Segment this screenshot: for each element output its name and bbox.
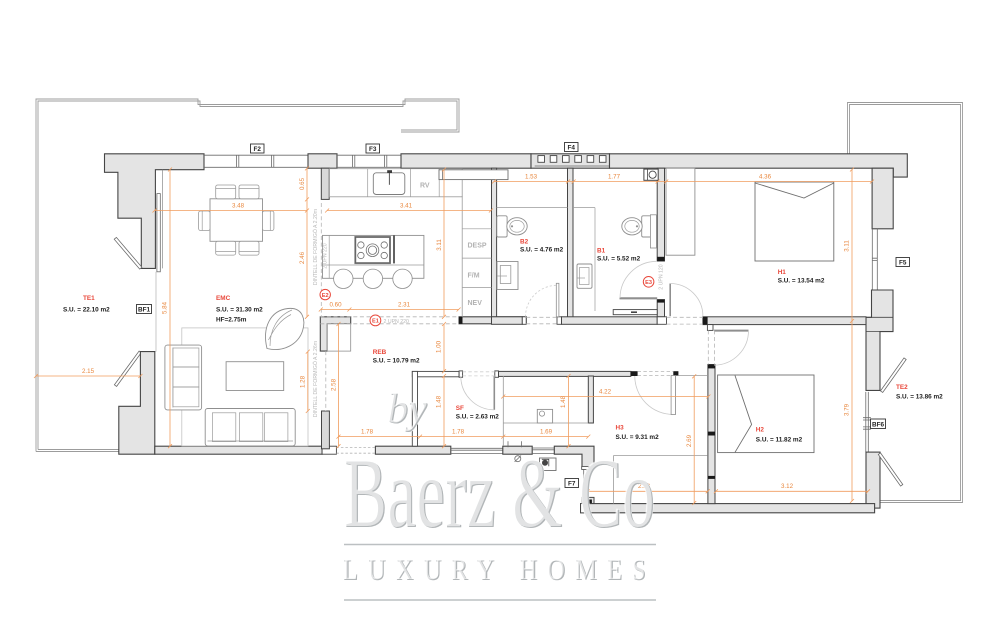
svg-text:3.12: 3.12 bbox=[781, 483, 794, 490]
svg-text:NEV: NEV bbox=[468, 300, 483, 307]
svg-text:S.U. = 13.54 m2: S.U. = 13.54 m2 bbox=[778, 278, 825, 285]
svg-text:1.00: 1.00 bbox=[436, 340, 443, 353]
svg-text:DINTELL DE FORMIGÓ A 2.20m: DINTELL DE FORMIGÓ A 2.20m bbox=[312, 209, 319, 285]
svg-text:2.58: 2.58 bbox=[331, 378, 338, 391]
svg-text:2 UPN 220: 2 UPN 220 bbox=[384, 319, 409, 325]
svg-text:1.77: 1.77 bbox=[608, 173, 621, 180]
svg-text:2.15: 2.15 bbox=[82, 368, 95, 375]
svg-text:1.78: 1.78 bbox=[361, 428, 374, 435]
svg-text:2 UPN 220: 2 UPN 220 bbox=[323, 243, 329, 268]
svg-text:E2: E2 bbox=[322, 293, 329, 299]
svg-text:E1: E1 bbox=[372, 319, 379, 325]
svg-text:B1: B1 bbox=[597, 248, 606, 255]
svg-text:4.22: 4.22 bbox=[599, 388, 612, 395]
svg-text:S.U. = 5.52 m2: S.U. = 5.52 m2 bbox=[597, 256, 641, 263]
svg-text:3.79: 3.79 bbox=[844, 403, 851, 416]
svg-text:S.U. = 2.63 m2: S.U. = 2.63 m2 bbox=[456, 414, 500, 421]
svg-text:2.69: 2.69 bbox=[686, 434, 693, 447]
svg-text:TE2: TE2 bbox=[896, 384, 908, 391]
svg-text:S.U. = 10.79 m2: S.U. = 10.79 m2 bbox=[373, 358, 420, 365]
svg-text:TE1: TE1 bbox=[83, 295, 95, 302]
svg-text:2.46: 2.46 bbox=[299, 251, 306, 264]
svg-text:1.53: 1.53 bbox=[525, 173, 538, 180]
svg-text:3.11: 3.11 bbox=[844, 240, 851, 252]
svg-text:E3: E3 bbox=[645, 280, 652, 286]
svg-text:LUXURY HOMES: LUXURY HOMES bbox=[342, 553, 655, 586]
svg-text:F4: F4 bbox=[567, 145, 575, 152]
svg-text:S.U. = 13.86 m2: S.U. = 13.86 m2 bbox=[896, 394, 943, 401]
svg-text:B2: B2 bbox=[520, 239, 529, 246]
svg-text:BF6: BF6 bbox=[872, 421, 885, 428]
svg-text:2.31: 2.31 bbox=[398, 301, 411, 308]
svg-text:S.U. = 31.30 m2: S.U. = 31.30 m2 bbox=[216, 307, 263, 314]
svg-text:BF1: BF1 bbox=[138, 307, 151, 314]
svg-text:5.84: 5.84 bbox=[162, 301, 169, 314]
svg-text:0.65: 0.65 bbox=[299, 177, 306, 190]
svg-text:Baerz & Co: Baerz & Co bbox=[343, 437, 654, 548]
svg-text:RV: RV bbox=[420, 183, 430, 190]
svg-text:1.69: 1.69 bbox=[540, 428, 553, 435]
svg-text:HF=2.75m: HF=2.75m bbox=[216, 317, 247, 324]
svg-text:S.U. = 11.82 m2: S.U. = 11.82 m2 bbox=[756, 437, 803, 444]
svg-text:3.48: 3.48 bbox=[232, 203, 245, 210]
svg-text:3.41: 3.41 bbox=[400, 203, 413, 210]
svg-text:REB: REB bbox=[373, 349, 387, 356]
svg-text:0.60: 0.60 bbox=[329, 301, 342, 308]
svg-text:DESP: DESP bbox=[468, 243, 487, 250]
svg-text:DINTELL DE FORMIGÓ A 2.26m: DINTELL DE FORMIGÓ A 2.26m bbox=[312, 341, 319, 417]
svg-text:F3: F3 bbox=[369, 146, 377, 153]
svg-text:F5: F5 bbox=[899, 260, 907, 267]
svg-text:1.48: 1.48 bbox=[560, 395, 567, 408]
svg-text:H1: H1 bbox=[778, 269, 787, 276]
svg-text:F2: F2 bbox=[253, 146, 261, 153]
svg-text:S.U. = 4.76 m2: S.U. = 4.76 m2 bbox=[520, 247, 564, 254]
svg-text:1.78: 1.78 bbox=[452, 428, 465, 435]
svg-text:3.11: 3.11 bbox=[436, 239, 443, 251]
svg-text:2 UPN 120: 2 UPN 120 bbox=[659, 264, 665, 289]
svg-text:H2: H2 bbox=[756, 427, 765, 434]
svg-text:4.36: 4.36 bbox=[759, 173, 772, 180]
svg-text:1.28: 1.28 bbox=[300, 375, 307, 388]
svg-text:by: by bbox=[387, 386, 427, 432]
svg-text:F/M: F/M bbox=[468, 273, 480, 280]
svg-text:EMC: EMC bbox=[216, 295, 231, 302]
svg-text:1.48: 1.48 bbox=[436, 395, 443, 408]
svg-text:S.U. = 22.10 m2: S.U. = 22.10 m2 bbox=[63, 307, 110, 314]
svg-text:SF: SF bbox=[456, 405, 464, 412]
svg-text:H3: H3 bbox=[616, 425, 625, 432]
